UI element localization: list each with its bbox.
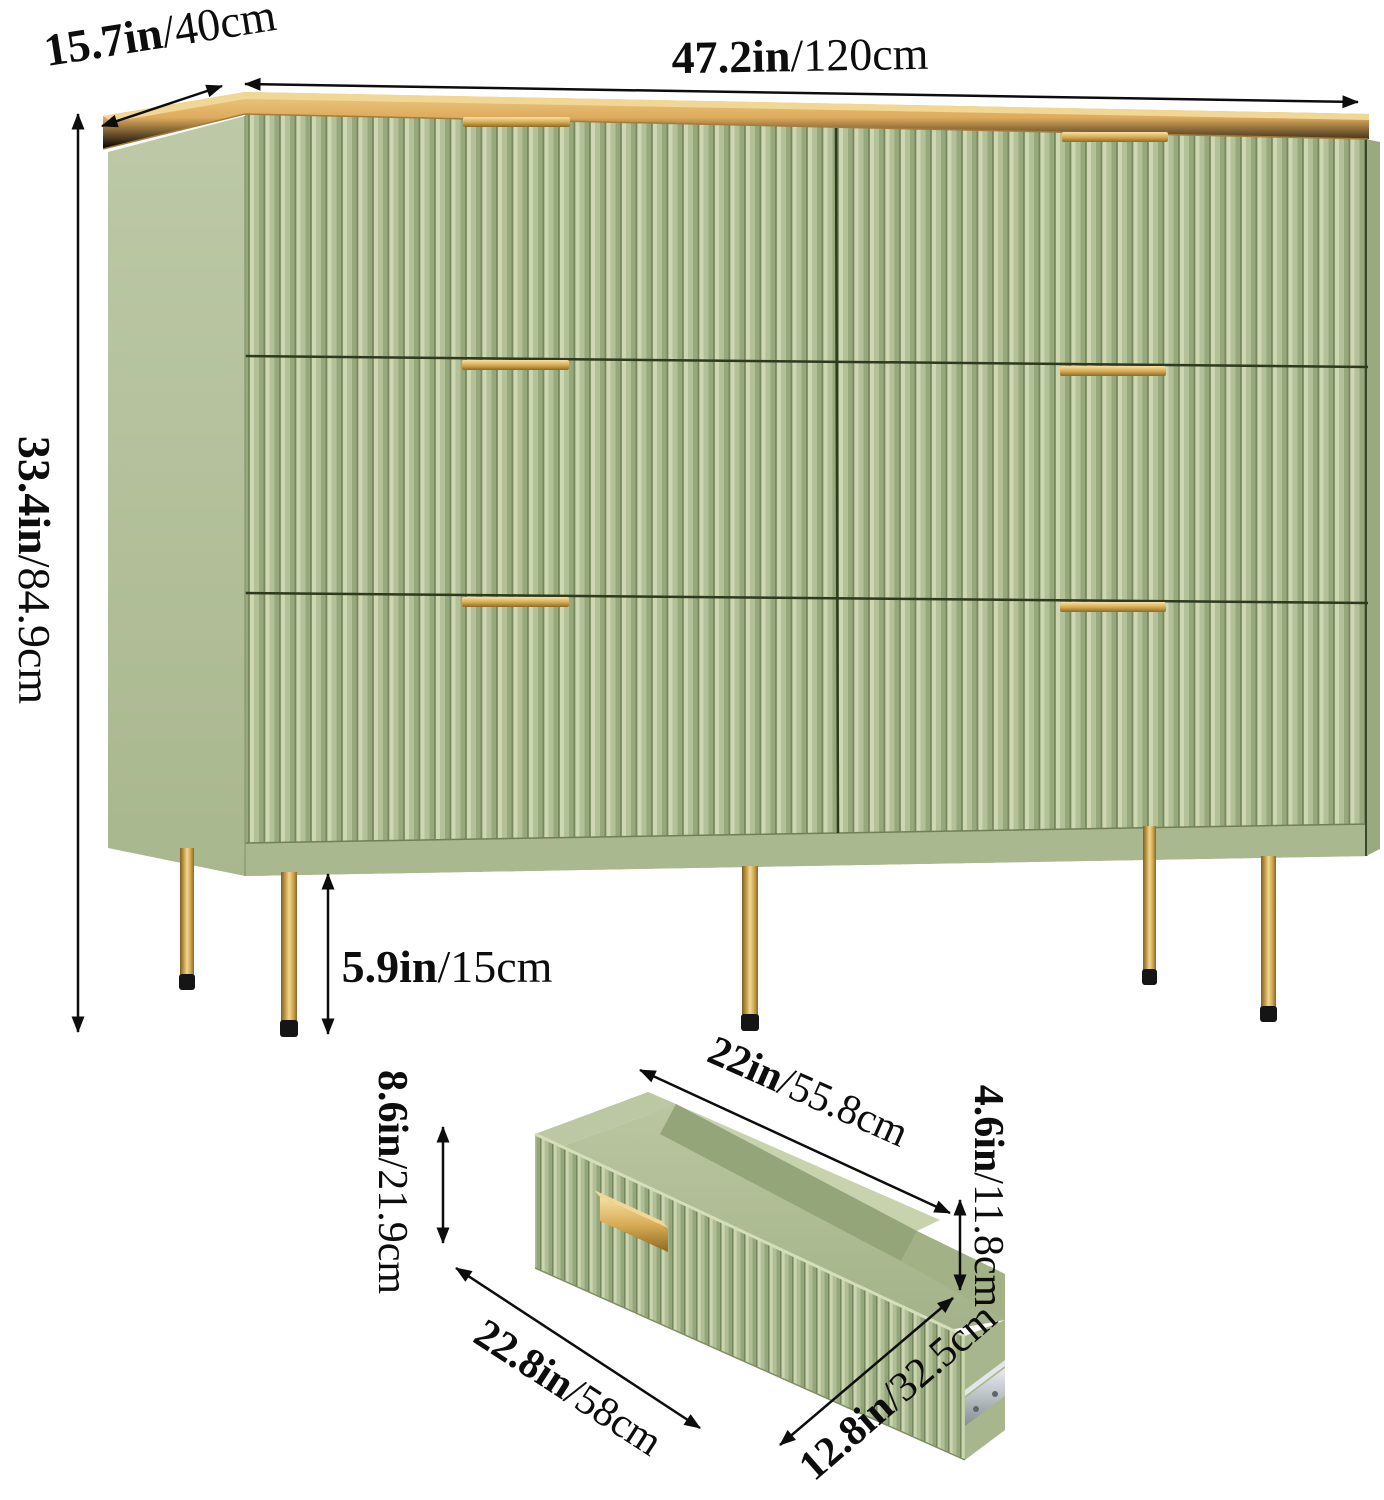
handle-top-right [1062, 132, 1168, 142]
dresser-side-panel [108, 116, 245, 876]
product-dimension-diagram: 15.7in/40cm 47.2in/120cm 33.4in/84.9cm 5… [0, 0, 1384, 1500]
leg-back-right [1142, 826, 1157, 985]
handle-mid-right [1060, 366, 1166, 376]
dresser-right-edge [1366, 139, 1380, 856]
leg-front-right [1260, 856, 1277, 1022]
dimension-drawer-inner-height: 4.6in/11.8cm [967, 1085, 1009, 1307]
dresser-front-face [245, 114, 1368, 876]
handle-bottom-left [462, 597, 569, 607]
dimension-drawer-front-height: 8.6in/21.9cm [371, 1070, 413, 1294]
handle-mid-left [462, 360, 569, 370]
handle-bottom-right [1060, 602, 1166, 612]
leg-front-center [741, 866, 759, 1031]
dimension-leg-height: 5.9in/15cm [342, 944, 553, 990]
dresser-illustration [103, 92, 1380, 1037]
leg-back-left [179, 848, 195, 990]
dimension-dresser-width: 47.2in/120cm [671, 31, 929, 81]
handle-top-left [463, 117, 570, 127]
dimension-dresser-height: 33.4in/84.9cm [11, 436, 57, 704]
leg-front-left [280, 872, 298, 1037]
furniture-illustration [0, 0, 1384, 1500]
